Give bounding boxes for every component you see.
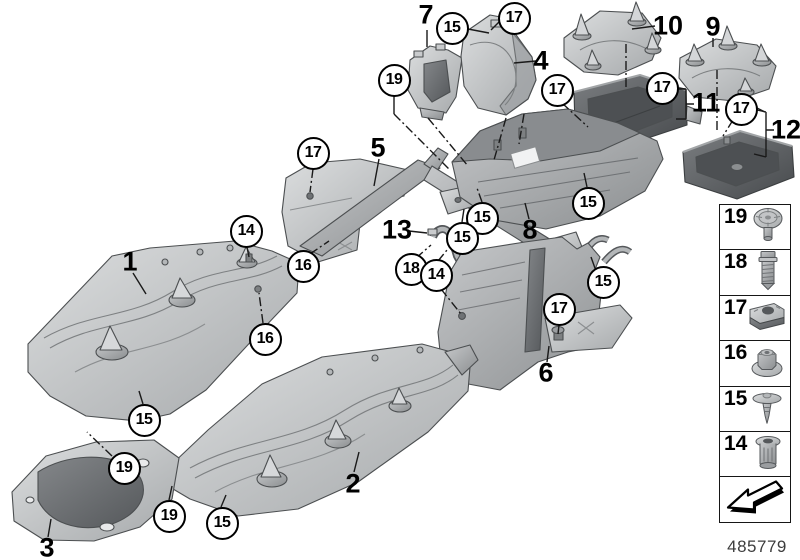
part-label-9[interactable]: 9 <box>705 14 720 41</box>
fastener-legend: 19 18 <box>719 204 791 523</box>
fastener-callout-17-6[interactable]: 17 <box>297 137 330 170</box>
fastener-callout-19-19[interactable]: 19 <box>153 500 186 533</box>
flanged-rivet-icon <box>748 204 788 251</box>
part-label-3[interactable]: 3 <box>39 535 54 560</box>
part-label-11[interactable]: 11 <box>692 90 721 117</box>
underbody-panelling-parts-diagram: 7410911125138162315171917171717151514151… <box>0 0 800 560</box>
fastener-callout-19-2[interactable]: 19 <box>378 64 411 97</box>
fastener-callout-16-11[interactable]: 16 <box>287 250 320 283</box>
part-3-arch-panel[interactable] <box>12 440 179 541</box>
legend-item-16[interactable]: 16 <box>719 340 791 387</box>
legend-item-15[interactable]: 15 <box>719 386 791 433</box>
fastener-callout-14-9[interactable]: 14 <box>230 215 263 248</box>
legend-item-19[interactable]: 19 <box>719 204 791 251</box>
expansion-sleeve-icon <box>748 431 788 478</box>
legend-number: 14 <box>724 432 747 456</box>
legend-number: 16 <box>724 341 747 365</box>
part-label-1[interactable]: 1 <box>122 249 137 276</box>
fastener-callout-16-16[interactable]: 16 <box>249 323 282 356</box>
legend-number: 15 <box>724 387 747 411</box>
view-direction-box <box>719 476 791 523</box>
legend-number: 19 <box>724 205 747 229</box>
part-label-13[interactable]: 13 <box>382 217 412 244</box>
drawing-number: 485779 <box>716 537 798 557</box>
part-label-8[interactable]: 8 <box>522 217 537 244</box>
legend-item-17[interactable]: 17 <box>719 295 791 342</box>
part-7-bracket[interactable] <box>408 44 462 120</box>
legend-item-14[interactable]: 14 <box>719 431 791 478</box>
fastener-callout-15-17[interactable]: 15 <box>128 404 161 437</box>
fastener-callout-17-15[interactable]: 17 <box>543 293 576 326</box>
expanding-rivet-icon <box>746 386 788 433</box>
fastener-callout-17-1[interactable]: 17 <box>498 2 531 35</box>
fastener-callout-15-14[interactable]: 15 <box>587 266 620 299</box>
direction-arrow-icon <box>724 477 786 522</box>
hex-bolt-icon <box>748 248 788 297</box>
part-label-4[interactable]: 4 <box>533 48 548 75</box>
fastener-callout-19-18[interactable]: 19 <box>108 452 141 485</box>
part-label-2[interactable]: 2 <box>345 471 360 498</box>
part-label-5[interactable]: 5 <box>370 135 385 162</box>
fastener-callout-17-3[interactable]: 17 <box>541 74 574 107</box>
part-label-10[interactable]: 10 <box>653 13 683 40</box>
legend-item-18[interactable]: 18 <box>719 249 791 296</box>
part-label-6[interactable]: 6 <box>538 360 553 387</box>
legend-number: 18 <box>724 250 747 274</box>
flange-nut-icon <box>746 341 788 386</box>
fastener-callout-17-5[interactable]: 17 <box>725 93 758 126</box>
part-label-7[interactable]: 7 <box>418 2 433 29</box>
fastener-callout-15-0[interactable]: 15 <box>436 12 469 45</box>
fastener-callout-15-20[interactable]: 15 <box>206 507 239 540</box>
fastener-callout-14-13[interactable]: 14 <box>420 259 453 292</box>
part-10-cover[interactable] <box>564 2 661 75</box>
fastener-callout-15-10[interactable]: 15 <box>446 222 479 255</box>
cage-nut-icon <box>744 296 788 341</box>
part-label-12[interactable]: 12 <box>771 117 800 144</box>
fastener-callout-15-7[interactable]: 15 <box>572 187 605 220</box>
fastener-callout-17-4[interactable]: 17 <box>646 72 679 105</box>
